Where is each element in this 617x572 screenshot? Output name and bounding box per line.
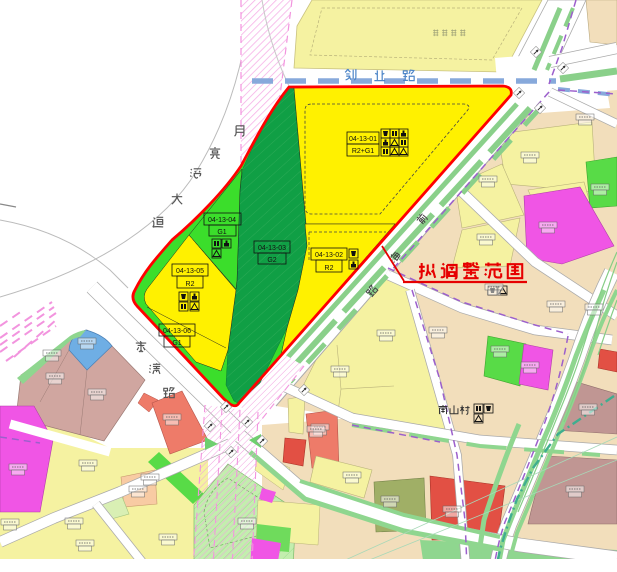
svg-text:G1: G1: [217, 229, 226, 236]
svg-text:R2: R2: [186, 281, 195, 288]
svg-text:R2+G1: R2+G1: [352, 148, 374, 155]
svg-text:R2: R2: [325, 265, 334, 272]
svg-text:04-13-01: 04-13-01: [349, 136, 377, 143]
svg-text:04-13-03: 04-13-03: [258, 245, 286, 252]
svg-text:04-13-06: 04-13-06: [163, 328, 191, 335]
svg-text:04-13-04: 04-13-04: [208, 217, 236, 224]
svg-text:G2: G2: [267, 257, 276, 264]
svg-text:04-13-02: 04-13-02: [315, 252, 343, 259]
svg-text:G1: G1: [172, 340, 181, 347]
svg-text:04-13-05: 04-13-05: [176, 268, 204, 275]
